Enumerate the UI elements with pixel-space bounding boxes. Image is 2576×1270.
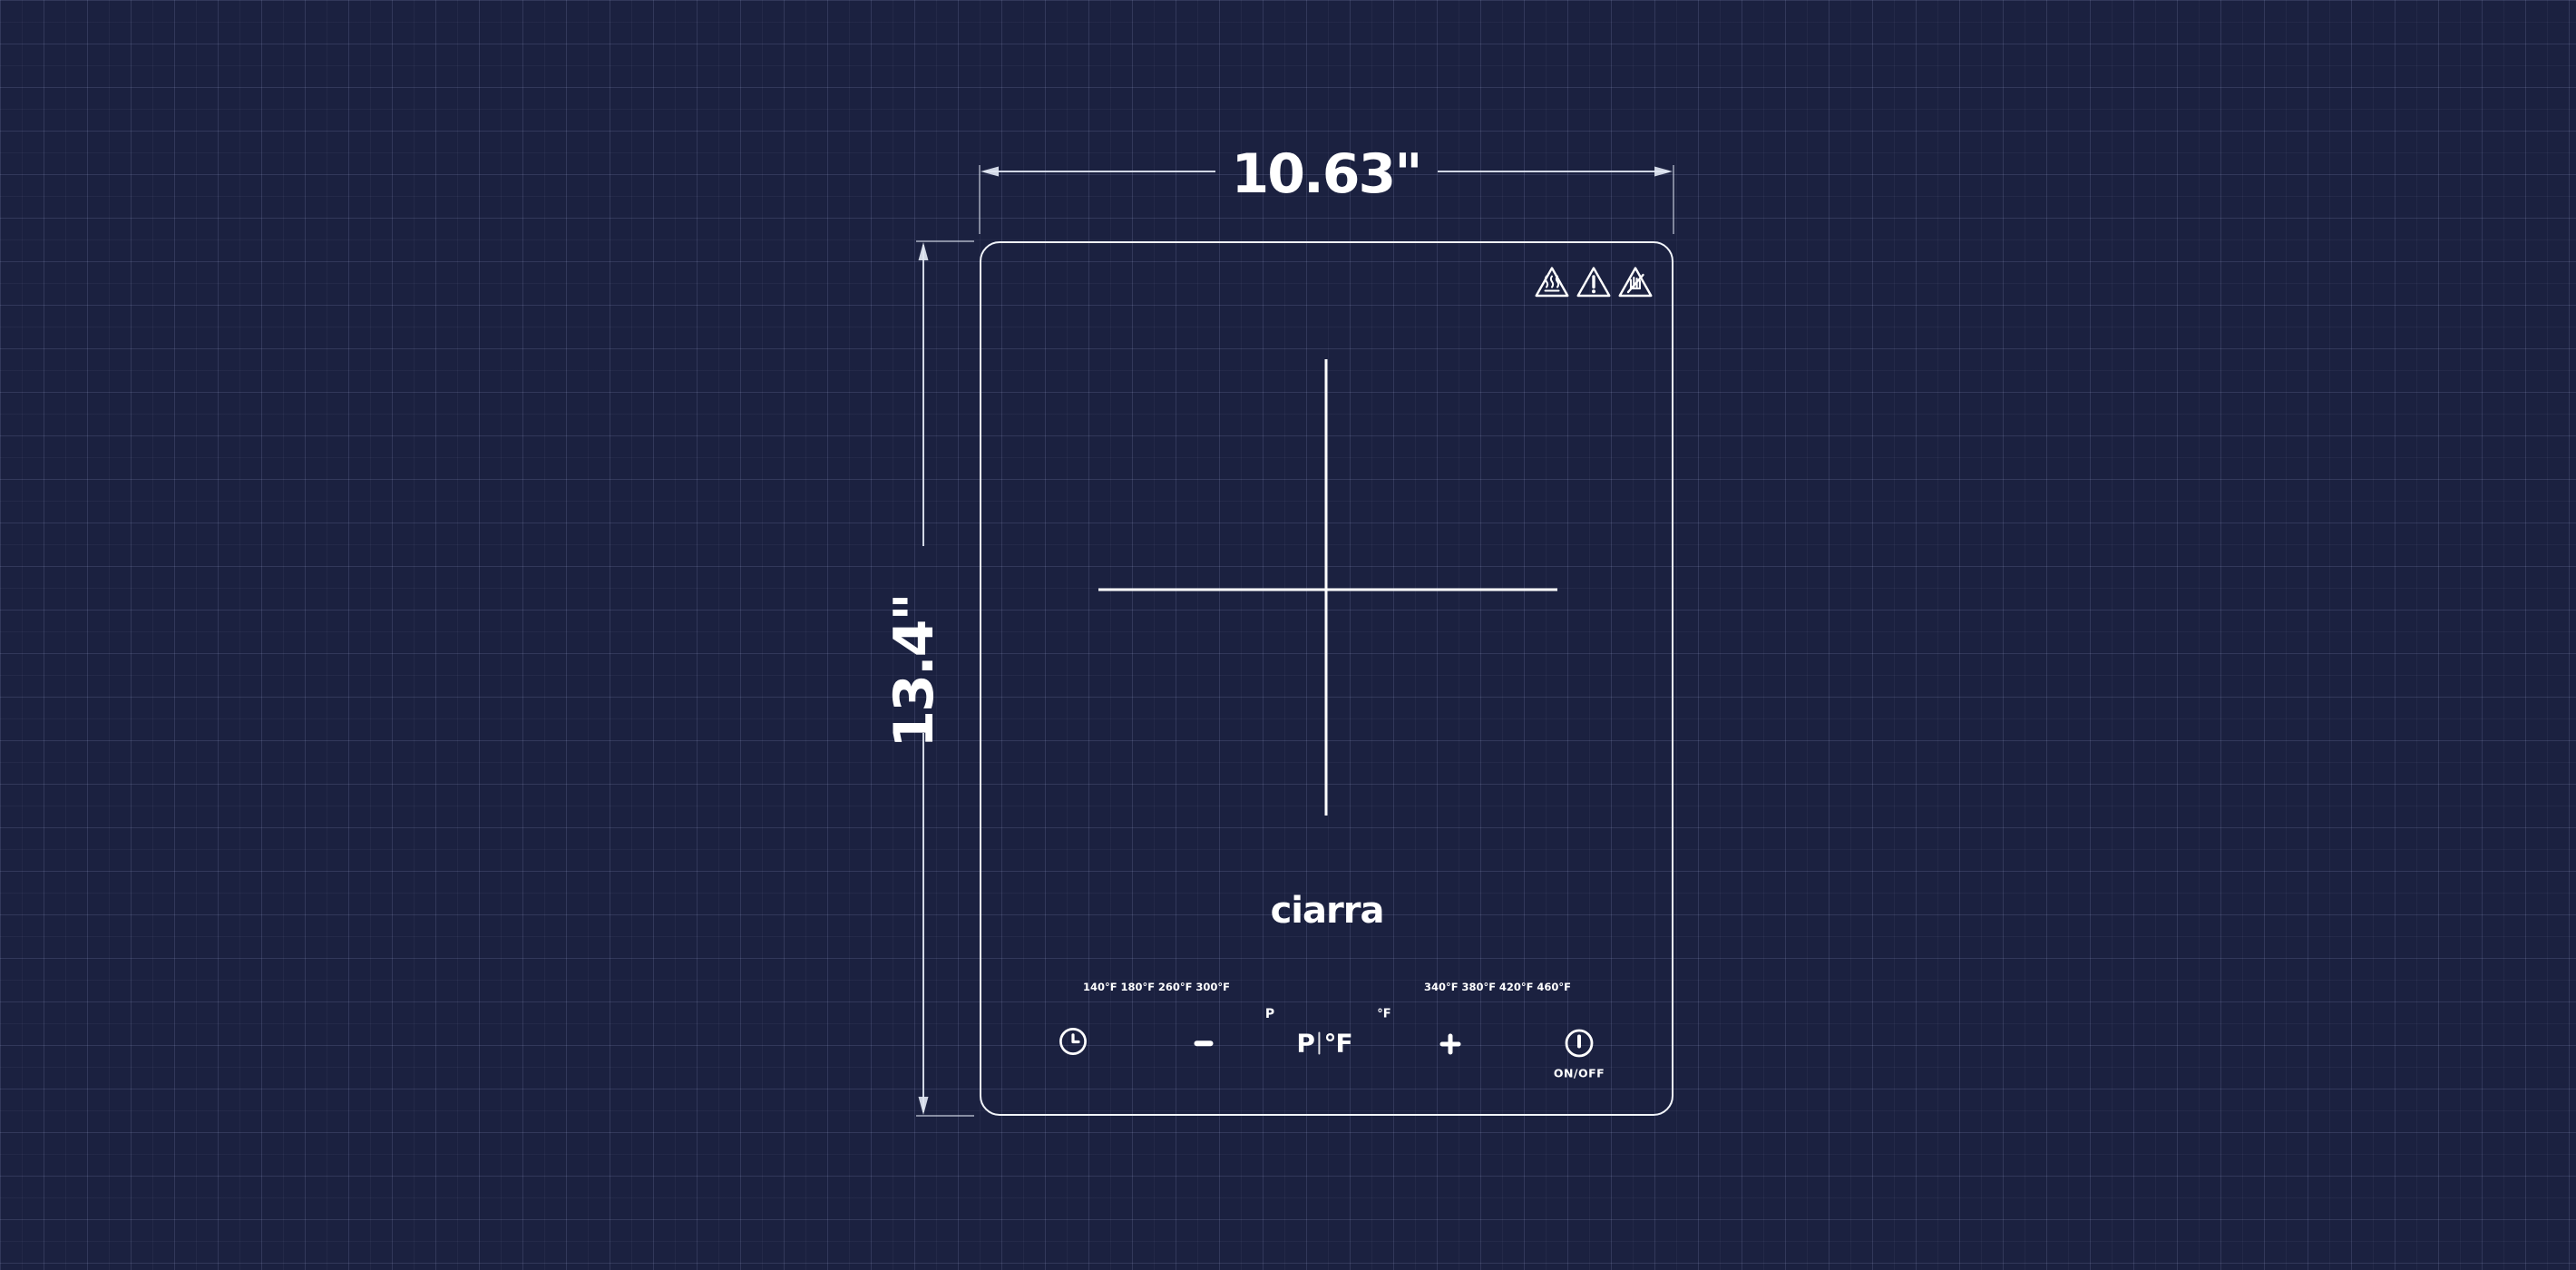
height-dimension-label: 13.4"	[883, 594, 946, 747]
warning-icons-group	[1534, 265, 1654, 299]
clock-icon	[1058, 1026, 1088, 1057]
brand-logo: ciarra	[1271, 890, 1384, 932]
display-temp-text: °F	[1323, 1029, 1351, 1059]
timer-button[interactable]	[1058, 1026, 1088, 1060]
temp-label: 460°F	[1537, 981, 1571, 993]
power-temp-display[interactable]: P °F	[1296, 1029, 1351, 1059]
temp-label: 300°F	[1195, 981, 1230, 993]
temp-label: 380°F	[1461, 981, 1496, 993]
power-button[interactable]	[1563, 1027, 1595, 1063]
temp-labels-left: 140°F 180°F 260°F 300°F	[1083, 981, 1230, 993]
display-divider	[1318, 1032, 1321, 1055]
temp-label: 140°F	[1083, 981, 1117, 993]
arrowhead-down	[919, 1097, 929, 1115]
display-power-text: P	[1296, 1029, 1314, 1059]
temp-label: 180°F	[1120, 981, 1155, 993]
temp-label: 420°F	[1499, 981, 1534, 993]
power-mode-indicator: P	[1265, 1007, 1274, 1021]
hot-surface-warning-icon	[1534, 265, 1570, 299]
general-caution-warning-icon	[1576, 265, 1612, 299]
minus-button[interactable]	[1195, 1040, 1214, 1046]
on-off-label: ON/OFF	[1554, 1067, 1605, 1080]
arrowhead-right	[1654, 167, 1673, 177]
arrowhead-left	[981, 167, 999, 177]
plus-icon	[1440, 1034, 1461, 1055]
blueprint-canvas: 10.63" 13.4"	[0, 0, 2576, 1270]
arrowhead-up	[919, 242, 929, 260]
temp-label: 260°F	[1158, 981, 1193, 993]
power-icon	[1563, 1027, 1595, 1060]
plus-button[interactable]	[1440, 1034, 1461, 1055]
temp-label: 340°F	[1424, 981, 1459, 993]
temp-labels-right: 340°F 380°F 420°F 460°F	[1424, 981, 1571, 993]
minus-icon	[1195, 1040, 1214, 1046]
do-not-touch-warning-icon	[1617, 265, 1654, 299]
width-dimension-label: 10.63"	[1231, 142, 1420, 206]
temp-mode-indicator: °F	[1377, 1008, 1390, 1021]
